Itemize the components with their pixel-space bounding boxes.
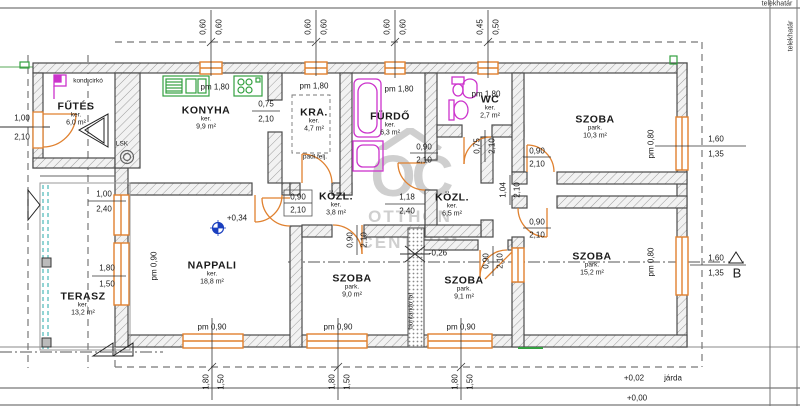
- dimension-label: 0,90: [482, 253, 491, 269]
- room-kind: park.: [572, 262, 611, 269]
- room-area: 6,5 m²: [435, 210, 469, 217]
- room-label-szoba: SZOBApark.15,2 m²: [572, 251, 611, 276]
- dimension-label: 0,90: [529, 218, 545, 227]
- room-area: 15,2 m²: [572, 269, 611, 276]
- floor-plan: OC OTTHON CENTRUM: [0, 0, 800, 406]
- dimension-label: 0,60: [320, 19, 329, 35]
- section-b-triangle: [729, 252, 743, 263]
- dimension-label: 1,18: [399, 193, 415, 202]
- walls: [33, 63, 687, 347]
- telekhatar-top-label: telekhatár: [762, 1, 793, 8]
- dimension-label: 0,60: [304, 19, 313, 35]
- dimension-label: 1,80: [451, 374, 460, 390]
- room-label-nappali: NAPPALIker.18,8 m²: [188, 260, 237, 285]
- dimension-label: pm 0,90: [447, 323, 476, 332]
- level-label: +0,34: [227, 214, 247, 223]
- room-kind: park.: [332, 284, 371, 291]
- dimension-label: 1,50: [217, 374, 226, 390]
- room-area: 9,9 m²: [182, 123, 231, 130]
- dimension-label: 2,10: [513, 182, 522, 198]
- room-area: 9,1 m²: [444, 293, 483, 300]
- dimension-label: 1,00: [96, 190, 112, 199]
- room-area: 6,0 m²: [58, 119, 95, 126]
- dimension-label: pm 0,80: [647, 130, 656, 159]
- room-label-szoba: SZOBApark.10,3 m²: [575, 114, 614, 139]
- room-label-szoba: SZOBApark.9,1 m²: [444, 275, 483, 300]
- dimension-label: 1,50: [99, 280, 115, 289]
- dimension-label: 1,60: [708, 135, 724, 144]
- room-kind: ker.: [370, 122, 410, 129]
- plan-drawing: [0, 0, 800, 406]
- dimension-label: 2,10: [496, 253, 505, 269]
- room-kind: ker.: [182, 116, 231, 123]
- room-area: 2,7 m²: [480, 112, 500, 119]
- room-label-fts: FŰTÉSker.6,0 m²: [58, 101, 95, 126]
- dimension-label: 0,45: [476, 19, 485, 35]
- room-area: 10,3 m²: [575, 132, 614, 139]
- annotation-label: B: [733, 266, 742, 281]
- dimension-label: 0,75: [473, 138, 482, 154]
- dimension-label: 0,90: [290, 193, 306, 202]
- room-label-terasz: TERASZker.13,2 m²: [61, 291, 106, 316]
- dimension-label: 0,75: [258, 100, 274, 109]
- level-label: +0,02: [624, 374, 644, 383]
- room-area: 18,8 m²: [188, 278, 237, 285]
- dimension-label: 1,80: [202, 374, 211, 390]
- dimension-label: 0,90: [346, 232, 355, 248]
- dimension-label: 2,10: [14, 133, 30, 142]
- dimension-label: 0,90: [416, 143, 432, 152]
- room-area: 4,7 m²: [300, 125, 328, 132]
- dimension-label: 1,80: [99, 264, 115, 273]
- level-label: -0,26: [429, 249, 447, 258]
- dimension-label: pm 1,80: [385, 85, 414, 94]
- room-kind: ker.: [188, 271, 237, 278]
- dimension-label: 0,60: [383, 19, 392, 35]
- dimension-label: 1,50: [343, 374, 352, 390]
- dimension-label: 2,10: [416, 156, 432, 165]
- room-kind: ker.: [435, 203, 469, 210]
- bontando-fal-wall: [408, 228, 424, 347]
- dimension-label: 2,10: [258, 115, 274, 124]
- room-label-kra: KRA.ker.4,7 m²: [300, 107, 328, 132]
- room-kind: park.: [575, 125, 614, 132]
- annotation-label: padl.felj.: [303, 154, 327, 161]
- dimension-label: pm 1,80: [201, 83, 230, 92]
- room-label-kzl: KÖZL.ker.3,8 m²: [319, 191, 353, 216]
- dimension-label: pm 0,80: [647, 248, 656, 277]
- room-kind: ker.: [319, 202, 353, 209]
- room-kind: ker.: [58, 112, 95, 119]
- annotation-label: bontandó fal: [408, 293, 415, 329]
- room-kind: ker.: [300, 118, 328, 125]
- level-marker-icon: [210, 220, 226, 236]
- level-label: járda: [664, 374, 682, 383]
- room-label-frd: FÜRDŐker.6,3 m²: [370, 111, 410, 136]
- dimension-label: 2,10: [360, 232, 369, 248]
- dimension-label: pm 1,80: [300, 82, 329, 91]
- room-label-konyha: KONYHAker.9,9 m²: [182, 105, 231, 130]
- dimension-label: 1,35: [708, 269, 724, 278]
- dimension-label: 2,10: [529, 160, 545, 169]
- telekhatar-right-label: telekhatár: [788, 21, 795, 52]
- dimension-label: 1,35: [708, 150, 724, 159]
- dimension-label: 1,00: [14, 114, 30, 123]
- dimension-label: 1,04: [499, 182, 508, 198]
- dimension-label: 2,40: [399, 207, 415, 216]
- room-area: 9,0 m²: [332, 291, 371, 298]
- room-area: 6,3 m²: [370, 129, 410, 136]
- dimension-label: 1,80: [328, 374, 337, 390]
- annotation-label: kond.cirkó: [73, 78, 103, 85]
- room-label-szoba: SZOBApark.9,0 m²: [332, 273, 371, 298]
- room-kind: ker.: [480, 105, 500, 112]
- room-label-kzl: KÖZL.ker.6,5 m²: [435, 192, 469, 217]
- dimension-label: 0,60: [199, 19, 208, 35]
- dimension-label: pm 0,90: [198, 323, 227, 332]
- dimension-label: 1,60: [708, 254, 724, 263]
- room-label-wc: WCker.2,7 m²: [480, 94, 500, 119]
- dimension-label: 0,60: [215, 19, 224, 35]
- dimension-label: 2,40: [96, 205, 112, 214]
- room-area: 13,2 m²: [61, 309, 106, 316]
- dimension-label: 1,50: [466, 374, 475, 390]
- dimension-label: 2,10: [290, 206, 306, 215]
- room-area: 3,8 m²: [319, 209, 353, 216]
- dimension-label: pm 0,90: [324, 323, 353, 332]
- dimension-label: 0,60: [399, 19, 408, 35]
- dimension-label: 0,90: [529, 147, 545, 156]
- room-kind: ker.: [61, 302, 106, 309]
- dimension-label: 2,10: [529, 231, 545, 240]
- dimension-label: 2,10: [488, 138, 497, 154]
- dimension-label: 0,50: [492, 19, 501, 35]
- room-kind: park.: [444, 286, 483, 293]
- annotation-label: LSK: [116, 141, 128, 148]
- dimension-label: pm 0,90: [150, 252, 159, 281]
- level-label: +0,00: [627, 394, 647, 403]
